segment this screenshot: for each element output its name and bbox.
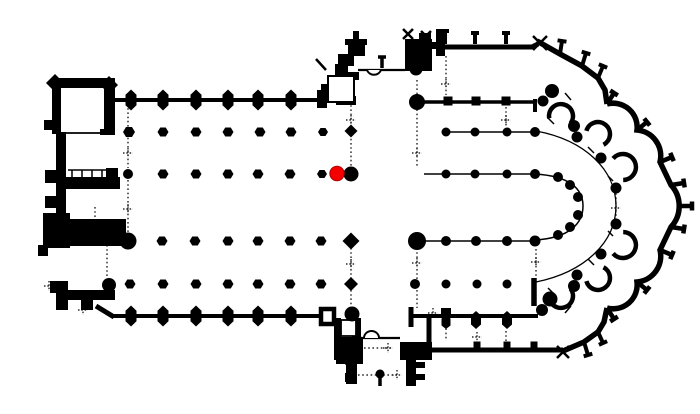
nave-column xyxy=(253,237,264,246)
round-pier xyxy=(442,170,451,179)
nave-column xyxy=(191,170,202,179)
ambulatory-arc xyxy=(535,174,583,240)
t-buttress-cap xyxy=(599,64,607,67)
nave-column xyxy=(253,170,264,179)
square-pier xyxy=(474,342,481,349)
round-pier xyxy=(545,84,559,98)
rib-tick xyxy=(588,259,594,265)
wall-buttress xyxy=(502,311,512,329)
floor-plan-svg xyxy=(0,0,700,414)
masonry-mass xyxy=(406,360,416,386)
radiating-chapel xyxy=(613,232,636,258)
round-pier xyxy=(565,180,575,190)
nave-column xyxy=(158,128,169,137)
round-pier xyxy=(503,128,512,137)
masonry-mass xyxy=(38,245,48,256)
nave-column xyxy=(191,128,202,137)
masonry-mass xyxy=(45,170,56,183)
round-pier xyxy=(442,128,451,137)
round-pier xyxy=(442,280,451,289)
round-pier xyxy=(473,280,482,289)
t-buttress-cap xyxy=(599,341,607,345)
round-pier xyxy=(573,210,583,220)
nave-column xyxy=(316,280,327,289)
rib-tick xyxy=(565,93,571,100)
diamond-pier xyxy=(344,277,358,291)
nave-column xyxy=(223,280,234,289)
diamond-pier xyxy=(343,233,360,250)
round-pier xyxy=(376,370,385,379)
chevet-outer-wall xyxy=(607,103,679,309)
masonry-mass xyxy=(43,213,70,248)
round-pier xyxy=(611,183,622,194)
thin-wall-line xyxy=(316,59,326,70)
masonry-mass xyxy=(81,300,93,310)
round-pier xyxy=(530,127,540,137)
radiating-chapel xyxy=(613,154,636,180)
wall-buttress xyxy=(158,306,169,327)
round-pier xyxy=(408,232,426,250)
masonry-mass xyxy=(44,120,52,130)
round-pier xyxy=(596,249,607,260)
masonry-mass xyxy=(416,374,425,380)
round-pier xyxy=(409,94,425,110)
round-pier xyxy=(123,169,133,179)
nave-column xyxy=(318,128,328,136)
round-pier xyxy=(410,279,420,289)
round-pier xyxy=(410,63,423,76)
t-buttress-cap xyxy=(670,251,673,259)
round-pier xyxy=(565,222,575,232)
masonry-mass xyxy=(56,290,115,300)
masonry-mass xyxy=(106,168,118,189)
t-buttress-cap xyxy=(582,52,591,55)
round-pier xyxy=(345,307,360,322)
nave-column xyxy=(223,237,234,246)
wall-buttress xyxy=(253,306,264,327)
round-pier xyxy=(536,304,548,316)
chapel-outline xyxy=(321,309,334,324)
wall-buttress xyxy=(286,90,297,111)
t-buttress xyxy=(582,53,586,66)
chapel-outline xyxy=(341,320,356,336)
wall-segment xyxy=(96,306,114,317)
wall-buttress xyxy=(223,90,234,111)
round-pier xyxy=(471,170,480,179)
nave-column xyxy=(317,170,327,178)
round-pier xyxy=(120,233,137,250)
round-pier xyxy=(503,280,512,289)
masonry-mass xyxy=(345,373,353,382)
t-buttress-cap xyxy=(670,153,673,161)
round-pier xyxy=(553,172,563,182)
masonry-mass xyxy=(400,342,432,360)
square-pier xyxy=(444,97,453,106)
square-pier xyxy=(531,342,538,349)
nave-column xyxy=(191,280,202,289)
masonry-mass xyxy=(45,196,56,208)
location-marker[interactable] xyxy=(330,166,344,180)
masonry-mass xyxy=(56,300,68,310)
round-pier xyxy=(530,236,541,247)
t-buttress xyxy=(584,342,588,355)
nave-column xyxy=(223,128,234,137)
round-pier xyxy=(441,236,451,246)
nave-column xyxy=(316,237,327,246)
nave-column xyxy=(158,170,169,179)
wall-buttress xyxy=(126,306,137,327)
nave-column xyxy=(123,127,135,137)
round-pier xyxy=(538,96,549,107)
t-buttress-cap xyxy=(558,40,567,41)
round-pier xyxy=(611,219,622,230)
round-pier xyxy=(553,230,563,240)
round-pier xyxy=(543,292,558,307)
portal-arch xyxy=(364,331,379,338)
diamond-pier xyxy=(345,125,358,138)
wall-buttress xyxy=(471,311,481,329)
nave-column xyxy=(255,128,266,137)
masonry-mass xyxy=(317,90,327,108)
round-pier xyxy=(572,270,583,281)
t-buttress-cap xyxy=(584,354,593,357)
cathedral-floor-plan xyxy=(0,0,700,414)
square-pier xyxy=(472,97,481,106)
wall-buttress xyxy=(223,306,234,327)
round-pier xyxy=(344,167,359,182)
nave-column xyxy=(157,237,168,246)
nave-column xyxy=(253,280,264,289)
nave-column xyxy=(286,128,297,137)
diamond-pier xyxy=(46,74,64,92)
masonry-mass xyxy=(335,64,348,76)
wall-buttress xyxy=(191,306,202,327)
t-buttress-cap xyxy=(683,179,684,188)
round-pier xyxy=(573,192,583,202)
radiating-chapel xyxy=(586,122,610,145)
round-pier xyxy=(530,169,540,179)
radiating-chapel xyxy=(549,104,573,123)
masonry-mass xyxy=(428,42,437,49)
radiating-chapel xyxy=(586,267,610,290)
wall-buttress xyxy=(286,306,297,327)
round-pier xyxy=(503,170,512,179)
round-pier xyxy=(572,132,583,143)
round-pier xyxy=(568,120,580,132)
round-pier xyxy=(102,278,116,292)
round-pier xyxy=(471,236,481,246)
round-pier xyxy=(596,153,607,164)
nave-column xyxy=(285,170,296,179)
round-pier xyxy=(471,128,480,137)
square-pier xyxy=(502,97,511,106)
nave-column xyxy=(285,280,296,289)
chapel-outline xyxy=(328,76,354,102)
nave-column xyxy=(158,280,169,289)
round-pier xyxy=(568,280,580,292)
wall-buttress xyxy=(126,90,137,111)
masonry-mass xyxy=(100,129,110,135)
nave-column xyxy=(223,170,234,179)
wall-buttress xyxy=(158,90,169,111)
nave-column xyxy=(190,237,201,246)
t-buttress-cap xyxy=(683,225,684,234)
wall-buttress xyxy=(191,90,202,111)
nave-column xyxy=(125,280,136,289)
masonry-mass xyxy=(416,362,425,368)
masonry-mass xyxy=(336,337,363,364)
wall-buttress xyxy=(253,90,264,111)
square-pier xyxy=(504,342,511,349)
rib-tick xyxy=(588,147,594,153)
portal-arch xyxy=(367,70,381,75)
nave-column xyxy=(285,237,296,246)
round-pier xyxy=(502,236,512,246)
